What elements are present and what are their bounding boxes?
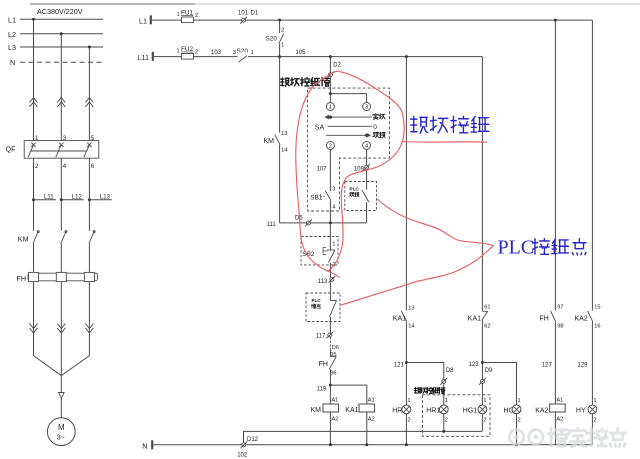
svg-text:105: 105 [296, 50, 307, 56]
svg-text:A1: A1 [331, 397, 338, 403]
svg-text:3~: 3~ [57, 433, 65, 442]
svg-text:A2: A2 [331, 416, 338, 422]
svg-text:2: 2 [483, 417, 486, 423]
svg-text:A2: A2 [556, 416, 563, 422]
svg-text:L11: L11 [138, 53, 149, 62]
svg-text:15: 15 [594, 305, 600, 311]
svg-text:1: 1 [518, 398, 521, 404]
svg-text:HR1: HR1 [426, 407, 440, 414]
svg-text:KM: KM [264, 138, 275, 145]
svg-text:HG1: HG1 [463, 407, 478, 414]
svg-text:2: 2 [329, 144, 332, 150]
svg-text:1: 1 [251, 50, 254, 56]
svg-text:4: 4 [365, 144, 368, 150]
svg-text:16: 16 [594, 323, 600, 329]
svg-text:PLC: PLC [498, 237, 535, 259]
svg-text:L2: L2 [8, 30, 16, 39]
svg-text:L1: L1 [8, 15, 16, 24]
svg-text:2: 2 [281, 28, 284, 34]
svg-text:SB1: SB1 [310, 194, 323, 201]
svg-text:N: N [10, 58, 15, 67]
svg-text:62: 62 [484, 323, 490, 329]
svg-text:HY: HY [576, 407, 586, 414]
svg-text:113: 113 [318, 279, 328, 285]
svg-text:FH: FH [17, 274, 27, 283]
svg-text:102: 102 [237, 452, 248, 458]
svg-text:L11: L11 [44, 195, 54, 201]
svg-text:127: 127 [542, 362, 553, 368]
svg-text:D1: D1 [251, 10, 259, 16]
svg-text:KA1: KA1 [345, 407, 358, 414]
svg-text:KA1: KA1 [468, 315, 481, 322]
svg-text:1: 1 [332, 242, 335, 248]
svg-text:2: 2 [407, 417, 410, 423]
svg-text:123: 123 [469, 362, 480, 368]
svg-text:2: 2 [195, 50, 198, 56]
svg-text:4: 4 [332, 205, 335, 211]
svg-text:2: 2 [445, 417, 448, 423]
svg-text:1: 1 [281, 43, 284, 49]
svg-text:2: 2 [518, 417, 521, 423]
svg-text:PLC: PLC [350, 187, 360, 192]
svg-text:L1: L1 [139, 17, 147, 26]
svg-text:A2: A2 [368, 416, 375, 422]
svg-text:1: 1 [483, 398, 486, 404]
svg-text:KM: KM [18, 234, 29, 243]
svg-text:1: 1 [177, 49, 180, 55]
svg-text:13: 13 [281, 131, 287, 137]
svg-text:129: 129 [578, 362, 589, 368]
svg-text:117: 117 [316, 333, 326, 339]
svg-text:S20: S20 [266, 35, 278, 42]
svg-text:98: 98 [557, 323, 563, 329]
svg-text:N: N [142, 442, 147, 451]
svg-text:3: 3 [332, 187, 335, 193]
svg-text:3: 3 [233, 50, 236, 56]
svg-text:101: 101 [238, 10, 249, 16]
svg-text:PLC: PLC [312, 298, 322, 303]
svg-text:HR: HR [392, 407, 402, 414]
svg-text:1: 1 [407, 398, 410, 404]
svg-text:KA2: KA2 [575, 315, 588, 322]
svg-text:M: M [58, 423, 65, 432]
svg-text:D12: D12 [247, 437, 259, 443]
svg-text:D6: D6 [332, 345, 339, 351]
svg-text:3: 3 [365, 105, 368, 111]
svg-text:D9: D9 [485, 368, 493, 374]
svg-text:96: 96 [330, 370, 336, 376]
svg-text:2: 2 [195, 13, 198, 19]
svg-text:0: 0 [373, 124, 377, 131]
svg-text:2: 2 [593, 417, 596, 423]
svg-text:13: 13 [408, 306, 414, 312]
svg-text:FH: FH [540, 315, 549, 322]
svg-text:D8: D8 [446, 368, 454, 374]
svg-text:A1: A1 [368, 397, 375, 403]
svg-text:SA: SA [315, 125, 325, 132]
svg-text:KA2: KA2 [535, 407, 548, 414]
svg-text:L3: L3 [8, 43, 16, 52]
svg-text:L13: L13 [100, 195, 111, 201]
svg-text:1: 1 [445, 398, 448, 404]
svg-text:1: 1 [593, 398, 596, 404]
svg-text:61: 61 [484, 305, 490, 311]
svg-text:111: 111 [267, 222, 277, 228]
svg-text:97: 97 [557, 305, 563, 311]
svg-text:KM: KM [311, 407, 322, 414]
svg-text:1: 1 [329, 105, 332, 111]
svg-text:FH: FH [319, 361, 328, 368]
svg-text:107: 107 [317, 167, 328, 173]
svg-text:A1: A1 [556, 397, 563, 403]
svg-text:119: 119 [317, 386, 327, 392]
svg-text:121: 121 [394, 362, 405, 368]
svg-text:AC380V/220V: AC380V/220V [37, 7, 83, 16]
svg-text:14: 14 [408, 323, 414, 329]
svg-text:1: 1 [177, 12, 180, 18]
svg-text:L12: L12 [72, 195, 83, 201]
svg-text:D2: D2 [333, 63, 341, 69]
svg-text:QF: QF [6, 144, 17, 153]
svg-text:14: 14 [281, 148, 287, 154]
svg-text:103: 103 [211, 50, 222, 56]
